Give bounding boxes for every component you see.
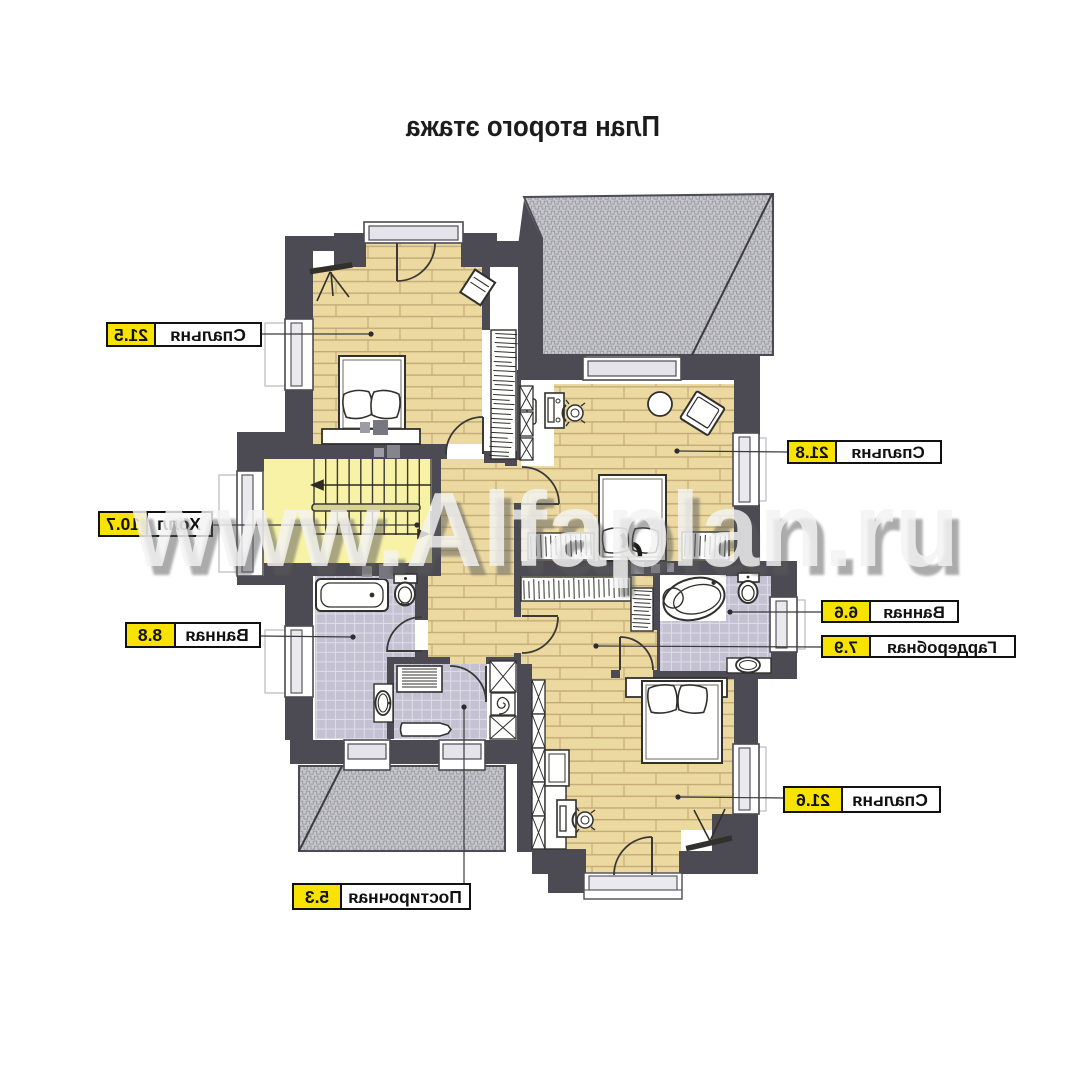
svg-text:5.3: 5.3: [305, 887, 330, 907]
svg-text:6.6: 6.6: [834, 603, 858, 622]
svg-text:8.8: 8.8: [138, 625, 163, 645]
svg-text:7.9: 7.9: [834, 638, 858, 657]
svg-text:Спальня: Спальня: [170, 325, 246, 345]
svg-text:21.5: 21.5: [114, 325, 148, 345]
svg-text:Гардеробная: Гардеробная: [887, 638, 997, 657]
svg-text:Спальня: Спальня: [851, 443, 924, 462]
svg-text:www.Alfaplan.ru: www.Alfaplan.ru: [132, 471, 959, 589]
svg-text:План второго этажа: План второго этажа: [405, 111, 660, 143]
svg-text:Постирочная: Постирочная: [348, 887, 462, 907]
svg-text:21.6: 21.6: [796, 790, 830, 810]
svg-text:21.8: 21.8: [795, 443, 828, 462]
svg-text:Спальня: Спальня: [852, 790, 928, 810]
svg-text:Ванная: Ванная: [883, 603, 945, 622]
svg-text:Ванная: Ванная: [185, 625, 248, 645]
